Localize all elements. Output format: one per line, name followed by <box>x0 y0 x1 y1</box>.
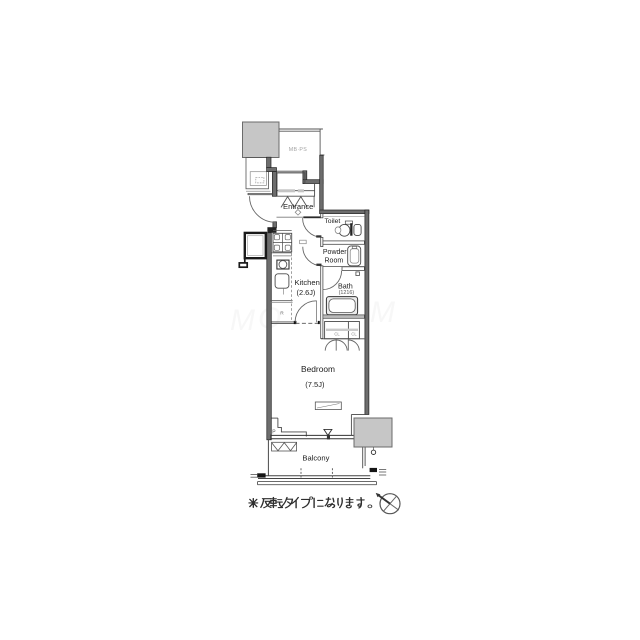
svg-text:CL: CL <box>334 332 340 337</box>
svg-text:MB·PS: MB·PS <box>289 147 307 153</box>
svg-text:(1216): (1216) <box>339 290 355 296</box>
svg-text:R: R <box>280 311 284 317</box>
svg-text:(2.6J): (2.6J) <box>297 288 316 297</box>
svg-text:CL: CL <box>351 332 357 337</box>
svg-text:Bath: Bath <box>338 282 353 291</box>
svg-text:Balcony: Balcony <box>302 453 329 462</box>
svg-text:Bedroom: Bedroom <box>301 364 335 374</box>
svg-text:Powder: Powder <box>323 249 347 256</box>
svg-text:Kitchen: Kitchen <box>295 278 320 287</box>
svg-text:Toilet: Toilet <box>324 218 340 225</box>
svg-text:M: M <box>370 296 395 329</box>
svg-text:(7.5J): (7.5J) <box>305 380 325 389</box>
svg-text:Room: Room <box>325 257 344 264</box>
svg-text:M: M <box>230 304 255 337</box>
